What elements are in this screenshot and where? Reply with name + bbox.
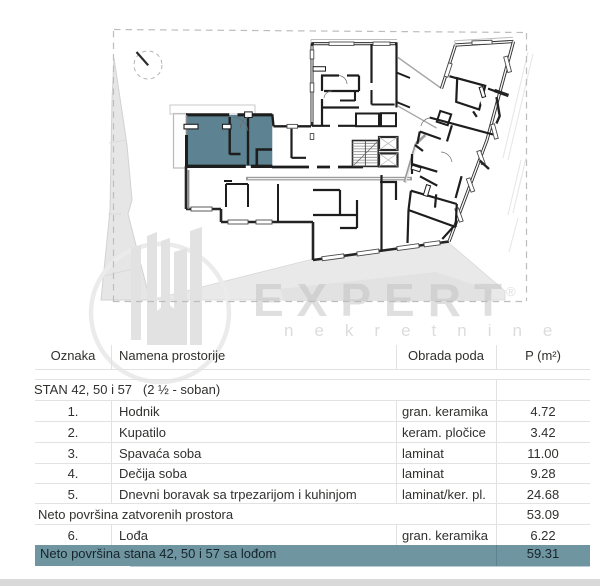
svg-text:EXPERT: EXPERT: [253, 274, 515, 326]
svg-text:nekretnine: nekretnine: [284, 321, 573, 340]
svg-text:®: ®: [506, 284, 516, 299]
